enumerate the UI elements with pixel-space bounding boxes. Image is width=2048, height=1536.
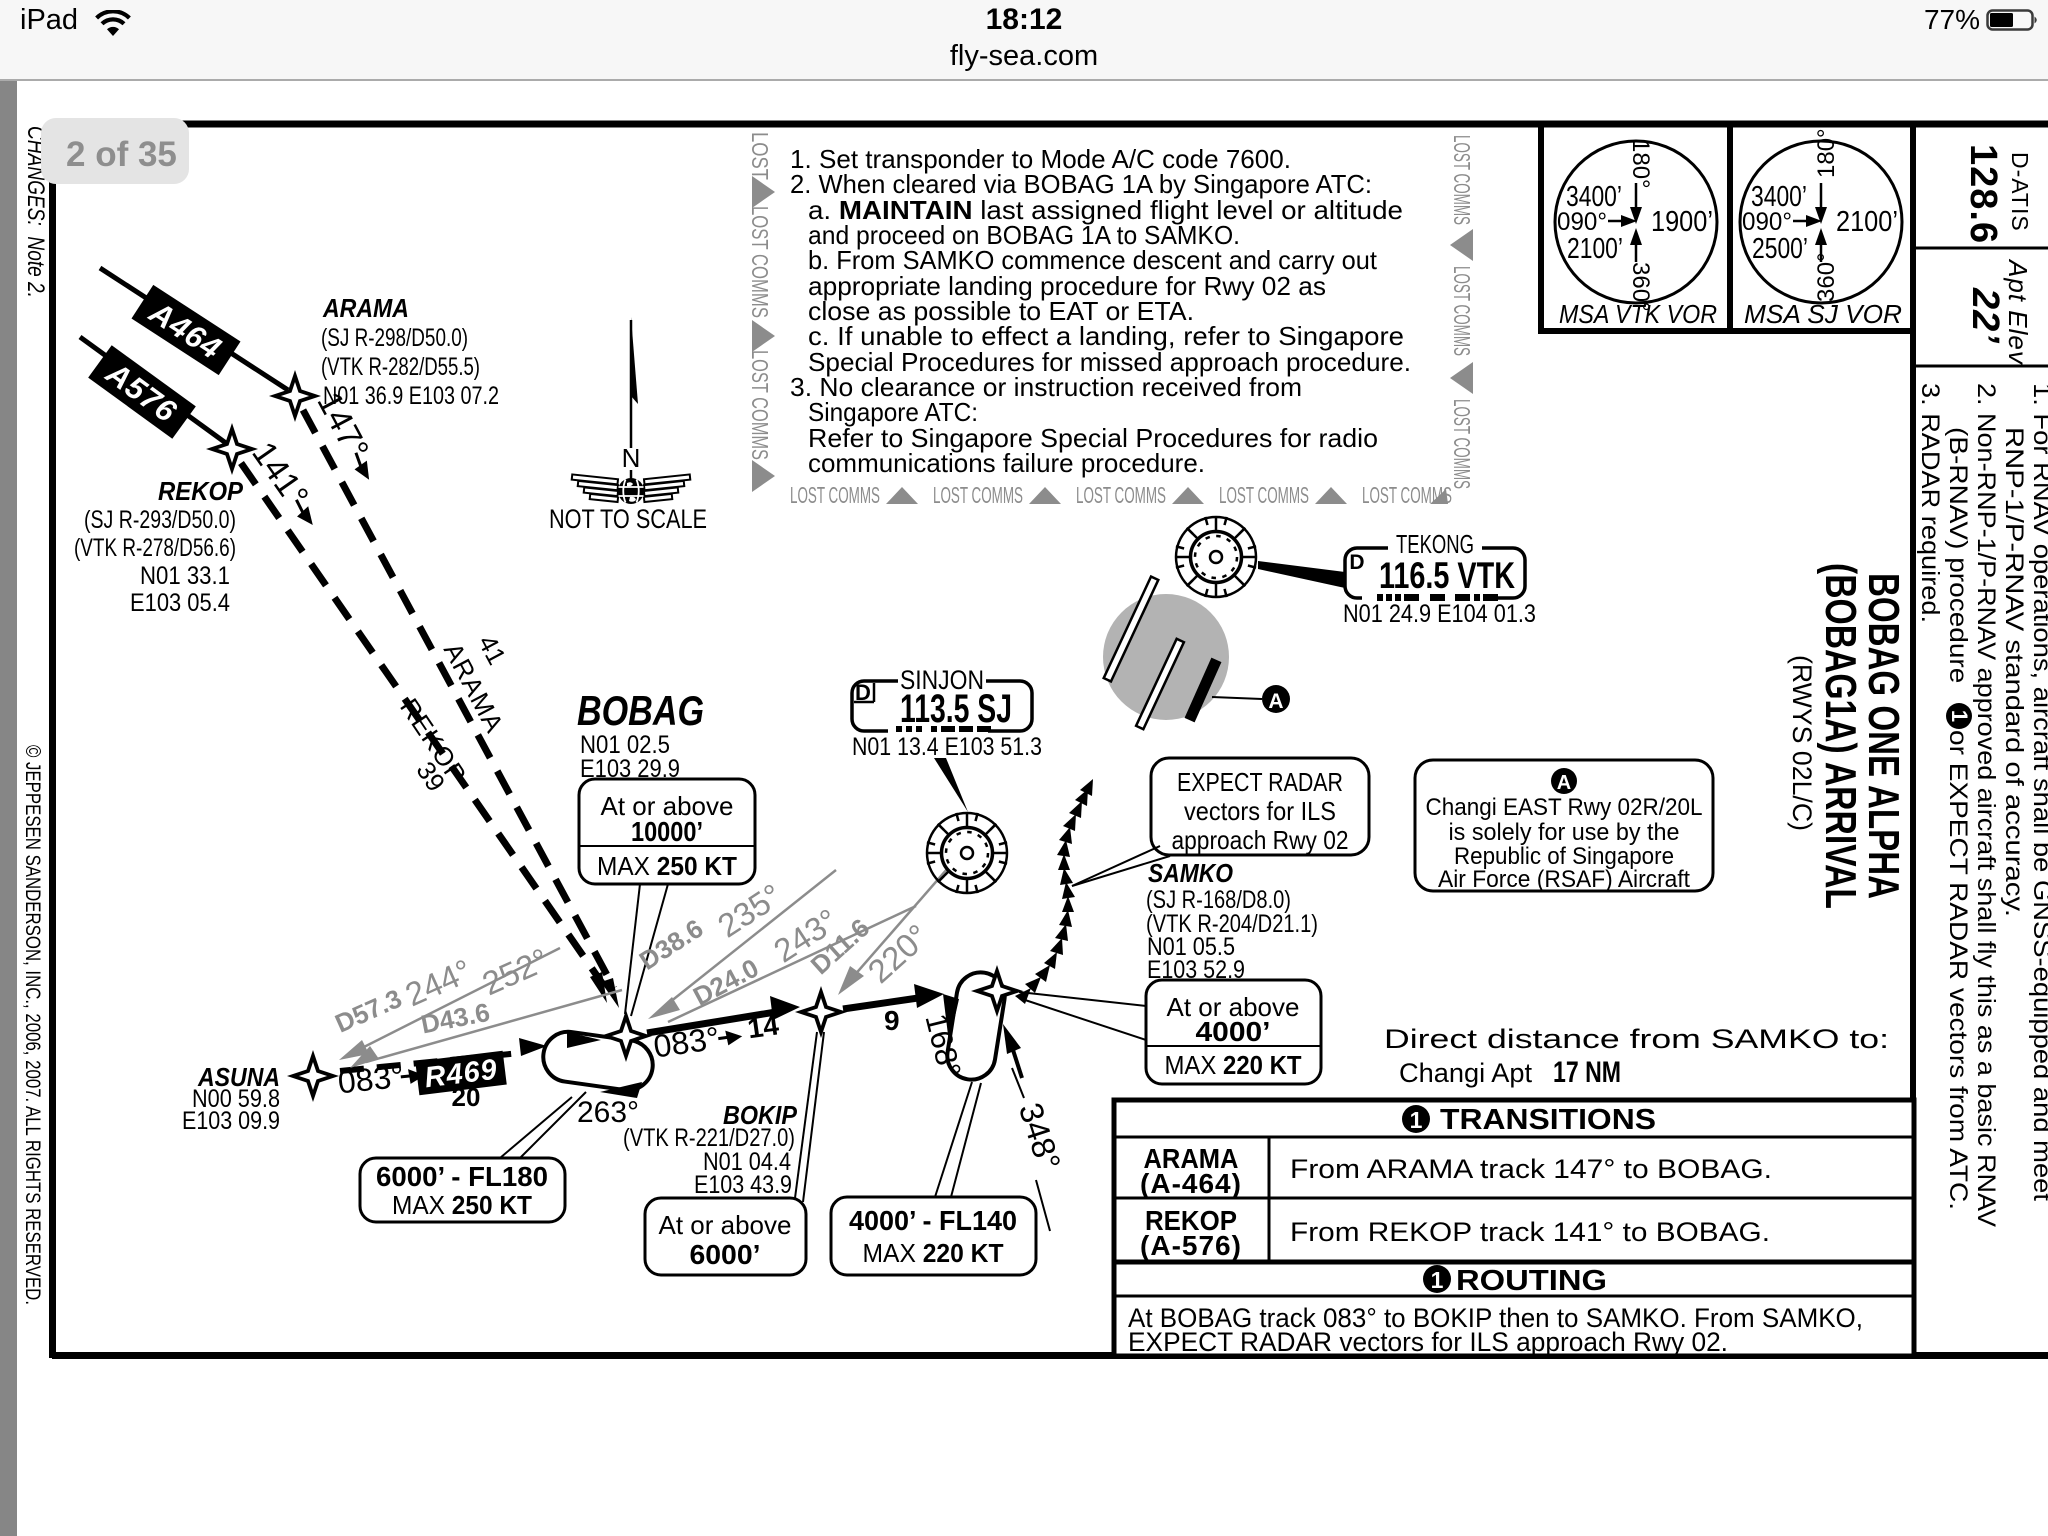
- svg-text:E103 05.4: E103 05.4: [130, 589, 230, 617]
- svg-text:(VTK R-278/D56.6): (VTK R-278/D56.6): [74, 534, 236, 562]
- svg-text:6000’: 6000’: [690, 1239, 761, 1270]
- svg-text:BOBAG: BOBAG: [577, 687, 704, 734]
- svg-text:LOST COMMS: LOST COMMS: [1449, 399, 1475, 489]
- svg-text:(SJ R-293/D50.0): (SJ R-293/D50.0): [84, 506, 236, 534]
- svg-text:BOBAG ONE ALPHA: BOBAG ONE ALPHA: [1859, 573, 1908, 899]
- svg-text:(SJ R-298/D50.0): (SJ R-298/D50.0): [321, 324, 468, 352]
- svg-text:EXPECT RADAR vectors for ILS a: EXPECT RADAR vectors for ILS approach Rw…: [1128, 1327, 1728, 1357]
- svg-text:MAX 250 KT: MAX 250 KT: [392, 1190, 532, 1220]
- svg-text:TRANSITIONS: TRANSITIONS: [1440, 1104, 1656, 1136]
- svg-text:MAX 220 KT: MAX 220 KT: [863, 1238, 1004, 1268]
- svg-text:LOST COMMS: LOST COMMS: [1362, 482, 1452, 508]
- svg-text:Apt Elev: Apt Elev: [2003, 258, 2033, 366]
- svg-text:D: D: [855, 680, 871, 705]
- svg-text:A576: A576: [99, 355, 184, 430]
- svg-text:A: A: [1268, 690, 1283, 713]
- svg-text:E103 43.9: E103 43.9: [694, 1171, 792, 1199]
- svg-text:approach Rwy 02: approach Rwy 02: [1172, 825, 1349, 855]
- svg-text:090°: 090°: [1742, 208, 1792, 236]
- svg-text:1900’: 1900’: [1651, 206, 1713, 238]
- svg-text:4000’ - FL140: 4000’ - FL140: [849, 1205, 1017, 1236]
- svg-text:LOST: LOST: [747, 132, 773, 180]
- svg-text:4000’: 4000’: [1196, 1016, 1271, 1047]
- svg-text:1. For RNAV operations, aircra: 1. For RNAV operations, aircraft shall b…: [2028, 383, 2048, 1201]
- svg-text:D24.0: D24.0: [688, 953, 763, 1012]
- svg-text:NOT TO SCALE: NOT TO SCALE: [549, 504, 707, 534]
- svg-text:090°: 090°: [1557, 208, 1607, 236]
- svg-text:180°: 180°: [1627, 139, 1654, 189]
- svg-text:LOST COMMS: LOST COMMS: [933, 482, 1023, 508]
- svg-text:N01 24.9 E104 01.3: N01 24.9 E104 01.3: [1343, 600, 1536, 628]
- svg-text:At or above: At or above: [659, 1210, 792, 1240]
- svg-text:17 NM: 17 NM: [1553, 1056, 1621, 1089]
- svg-text:2. Non-RNP-1/P-RNAV approved a: 2. Non-RNP-1/P-RNAV approved aircraft sh…: [1972, 383, 2000, 1227]
- svg-text:Direct distance from SAMKO to:: Direct distance from SAMKO to:: [1384, 1024, 1889, 1054]
- svg-text:(RWYS 02L/C): (RWYS 02L/C): [1787, 655, 1817, 831]
- svg-text:2500’: 2500’: [1752, 233, 1808, 265]
- svg-text:083°: 083°: [336, 1058, 406, 1101]
- svg-text:Changi EAST Rwy 02R/20L: Changi EAST Rwy 02R/20L: [1426, 794, 1703, 821]
- svg-text:MAX 250 KT: MAX 250 KT: [597, 851, 737, 881]
- svg-text:From ARAMA track 147° to BOBAG: From ARAMA track 147° to BOBAG.: [1290, 1154, 1772, 1184]
- svg-text:EXPECT RADAR: EXPECT RADAR: [1177, 767, 1343, 797]
- svg-text:168°: 168°: [918, 1010, 967, 1081]
- svg-text:1: 1: [1410, 1107, 1423, 1133]
- svg-text:ROUTING: ROUTING: [1456, 1265, 1607, 1297]
- svg-text:LOST COMMS: LOST COMMS: [747, 350, 773, 460]
- svg-text:360°: 360°: [1813, 252, 1840, 302]
- svg-text:(A-464): (A-464): [1140, 1168, 1242, 1199]
- svg-text:N: N: [622, 443, 641, 473]
- svg-text:(VTK R-282/D55.5): (VTK R-282/D55.5): [321, 353, 480, 381]
- svg-text:LOST COMMS: LOST COMMS: [1219, 482, 1309, 508]
- svg-text:REKOP: REKOP: [158, 476, 244, 506]
- svg-text:1: 1: [1947, 710, 1972, 722]
- svg-text:SAMKO: SAMKO: [1148, 858, 1233, 888]
- svg-text:Air Force (RSAF) Aircraft: Air Force (RSAF) Aircraft: [1438, 866, 1690, 893]
- svg-text:MAX 220 KT: MAX 220 KT: [1165, 1050, 1302, 1080]
- svg-text:communications failure procedu: communications failure procedure.: [808, 448, 1205, 478]
- svg-text:128.6: 128.6: [1962, 144, 2004, 244]
- svg-text:D38.6: D38.6: [634, 913, 709, 976]
- svg-text:MSA SJ VOR: MSA SJ VOR: [1744, 299, 1902, 329]
- svg-text:LOST COMMS: LOST COMMS: [1449, 135, 1475, 225]
- svg-text:180°: 180°: [1813, 128, 1840, 178]
- svg-text:A464: A464: [143, 294, 228, 366]
- svg-text:2100’: 2100’: [1836, 206, 1898, 238]
- svg-text:LOST COMMS: LOST COMMS: [747, 206, 773, 318]
- svg-text:(A-576): (A-576): [1140, 1230, 1242, 1261]
- svg-text:6000’ - FL180: 6000’ - FL180: [376, 1161, 548, 1192]
- svg-text:D-ATIS: D-ATIS: [2007, 152, 2033, 232]
- svg-text:2 of 35: 2 of 35: [66, 135, 177, 174]
- svg-text:20: 20: [452, 1082, 481, 1112]
- svg-text:252°: 252°: [477, 941, 554, 1003]
- svg-text:083°: 083°: [651, 1020, 722, 1065]
- svg-text:E103 09.9: E103 09.9: [182, 1107, 280, 1135]
- svg-text:(B-RNAV) procedure or EXP: (B-RNAV) procedure or EXPECT RADAR vecto…: [1944, 427, 1972, 1210]
- svg-text:N01 33.1: N01 33.1: [140, 562, 230, 590]
- svg-text:22’: 22’: [1964, 287, 2006, 344]
- svg-text:(BOBAG1A) ARRIVAL: (BOBAG1A) ARRIVAL: [1816, 563, 1865, 909]
- svg-text:ARAMA: ARAMA: [322, 293, 409, 323]
- svg-text:D: D: [1349, 551, 1364, 574]
- svg-text:A: A: [1557, 772, 1571, 794]
- svg-text:MSA VTK VOR: MSA VTK VOR: [1559, 299, 1717, 329]
- svg-text:is solely for use by the: is solely for use by the: [1449, 819, 1680, 846]
- svg-text:3. RADAR required.: 3. RADAR required.: [1916, 383, 1944, 623]
- svg-text:LOST COMMS: LOST COMMS: [1076, 482, 1166, 508]
- svg-text:LOST COMMS: LOST COMMS: [790, 482, 880, 508]
- svg-text:141°: 141°: [244, 435, 315, 514]
- svg-text:vectors for ILS: vectors for ILS: [1184, 796, 1336, 826]
- svg-text:© JEPPESEN SANDERSON, INC., 20: © JEPPESEN SANDERSON, INC., 2006, 2007. …: [21, 745, 44, 1305]
- svg-text:14: 14: [746, 1009, 782, 1044]
- svg-text:10000’: 10000’: [631, 816, 703, 847]
- svg-text:N01 13.4 E103 51.3: N01 13.4 E103 51.3: [852, 733, 1042, 761]
- svg-text:LOST COMMS: LOST COMMS: [1449, 266, 1475, 356]
- svg-text:2100’: 2100’: [1567, 233, 1623, 265]
- svg-text:RNP-1/P-RNAV standard of accur: RNP-1/P-RNAV standard of accuracy.: [2000, 427, 2028, 917]
- svg-text:From REKOP track 141° to BOBAG: From REKOP track 141° to BOBAG.: [1290, 1217, 1770, 1247]
- svg-text:348°: 348°: [1012, 1098, 1068, 1174]
- svg-text:9: 9: [884, 1005, 900, 1036]
- svg-text:Changi Apt: Changi Apt: [1399, 1058, 1532, 1088]
- svg-text:1: 1: [1431, 1267, 1444, 1293]
- svg-text:113.5 SJ: 113.5 SJ: [900, 687, 1012, 731]
- svg-text:116.5 VTK: 116.5 VTK: [1379, 555, 1515, 596]
